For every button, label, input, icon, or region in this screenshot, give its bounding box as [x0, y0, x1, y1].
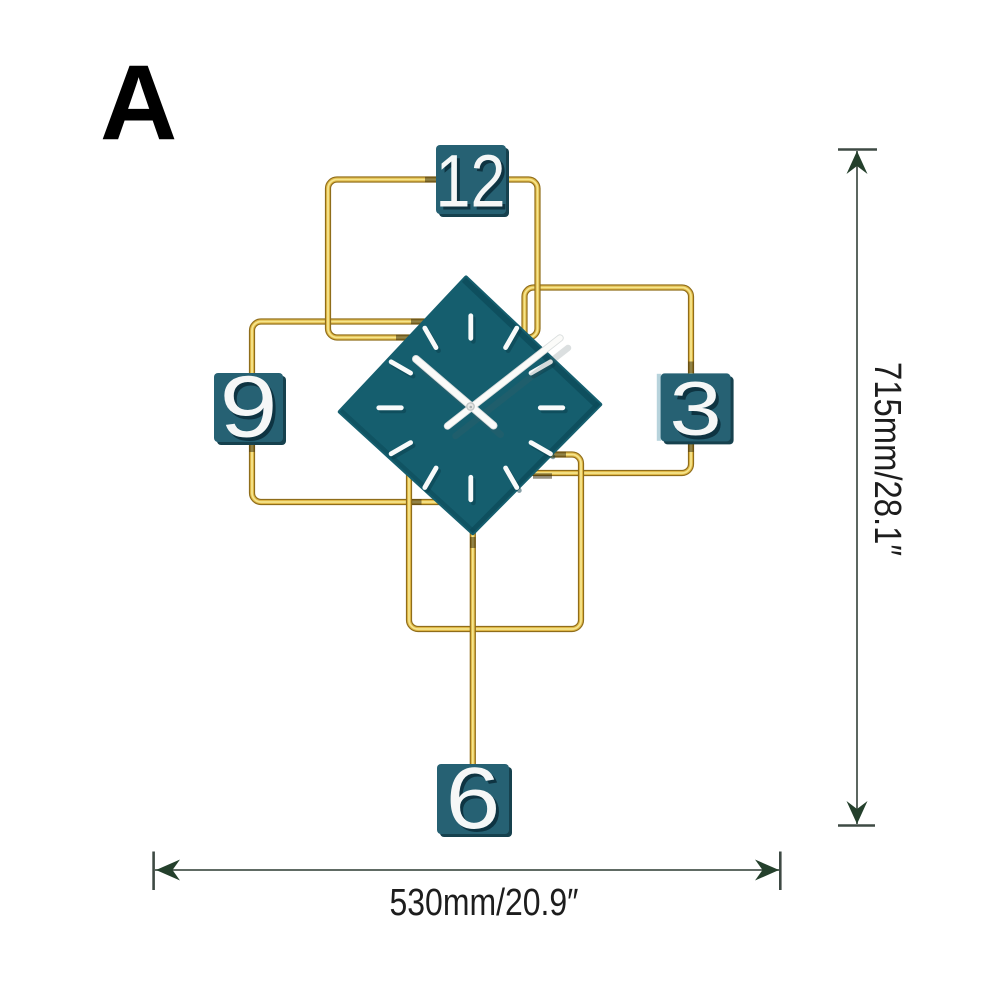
svg-text:12: 12	[436, 140, 506, 223]
svg-text:A: A	[100, 43, 177, 163]
svg-text:715mm/28.1″: 715mm/28.1″	[866, 362, 908, 556]
svg-text:530mm/20.9″: 530mm/20.9″	[390, 882, 579, 924]
svg-text:9: 9	[219, 359, 277, 456]
svg-text:6: 6	[446, 749, 501, 846]
svg-text:3: 3	[669, 368, 721, 452]
